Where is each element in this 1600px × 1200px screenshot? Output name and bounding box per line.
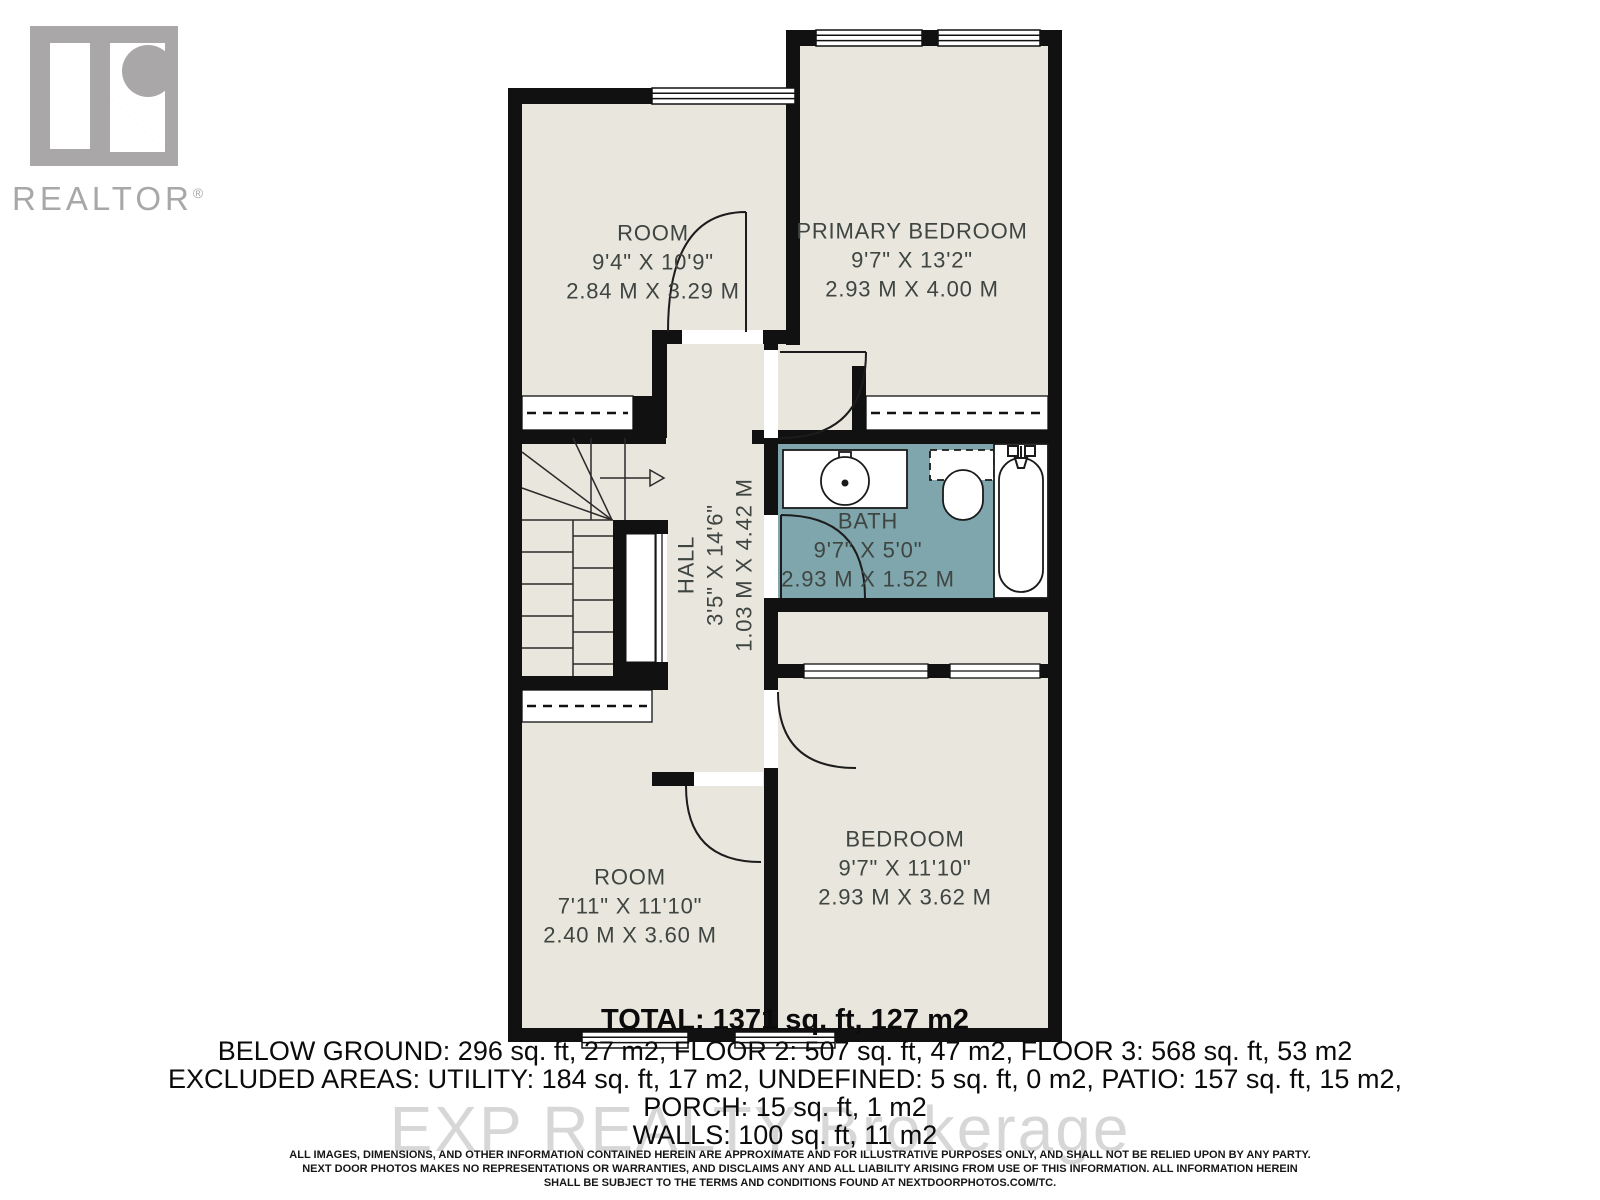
room-label-primary-bedroom: PRIMARY BEDROOM 9'7" X 13'2" 2.93 M X 4.… — [796, 217, 1027, 304]
room-label-bath: BATH 9'7" X 5'0" 2.93 M X 1.52 M — [781, 507, 954, 594]
bathtub — [994, 444, 1048, 598]
room-name: ROOM — [543, 863, 716, 892]
room-name: BEDROOM — [818, 825, 991, 854]
room-name: PRIMARY BEDROOM — [796, 217, 1027, 246]
room-label-hall: HALL 3'5" X 14'6" 1.03 M X 4.42 M — [672, 478, 759, 651]
room-dim-metric: 2.40 M X 3.60 M — [543, 921, 716, 950]
registered-mark: ® — [193, 185, 207, 201]
closet — [522, 396, 633, 430]
floorplan-page: ROOM 9'4" X 10'9" 2.84 M X 3.29 M PRIMAR… — [0, 0, 1600, 1200]
room-label-upper-left: ROOM 9'4" X 10'9" 2.84 M X 3.29 M — [566, 219, 739, 306]
room-dim-imperial: 9'4" X 10'9" — [566, 248, 739, 277]
window — [652, 88, 795, 104]
room-dim-metric: 2.84 M X 3.29 M — [566, 277, 739, 306]
room-label-bedroom: BEDROOM 9'7" X 11'10" 2.93 M X 3.62 M — [818, 825, 991, 912]
disclaimer-line: SHALL BE SUBJECT TO THE TERMS AND CONDIT… — [0, 1176, 1600, 1190]
hall-closet — [626, 534, 655, 662]
room-dim-imperial: 9'7" X 11'10" — [818, 854, 991, 883]
summary-porch: PORCH: 15 sq. ft, 1 m2 — [0, 1092, 1570, 1123]
room-dim-imperial: 3'5" X 14'6" — [701, 478, 730, 651]
summary-walls: WALLS: 100 sq. ft, 11 m2 — [0, 1120, 1570, 1151]
disclaimer-line: ALL IMAGES, DIMENSIONS, AND OTHER INFORM… — [0, 1148, 1600, 1162]
room-dim-metric: 2.93 M X 1.52 M — [781, 565, 954, 594]
vanity-sink — [783, 450, 907, 508]
room-dim-metric: 1.03 M X 4.42 M — [730, 478, 759, 651]
summary-floors: BELOW GROUND: 296 sq. ft, 27 m2, FLOOR 2… — [0, 1036, 1570, 1067]
realtor-logo-icon — [30, 26, 190, 176]
room-dim-imperial: 7'11" X 11'10" — [543, 892, 716, 921]
summary-excluded: EXCLUDED AREAS: UTILITY: 184 sq. ft, 17 … — [0, 1064, 1570, 1095]
room-name: ROOM — [566, 219, 739, 248]
summary-total: TOTAL: 1371 sq. ft, 127 m2 — [0, 1004, 1570, 1037]
room-label-lower-left: ROOM 7'11" X 11'10" 2.40 M X 3.60 M — [543, 863, 716, 950]
closet-sliding-doors — [804, 664, 1040, 678]
room-dim-metric: 2.93 M X 3.62 M — [818, 883, 991, 912]
window — [938, 30, 1040, 46]
room-dim-metric: 2.93 M X 4.00 M — [796, 275, 1027, 304]
room-name: HALL — [672, 478, 701, 651]
room-dim-imperial: 9'7" X 5'0" — [781, 536, 954, 565]
room-dim-imperial: 9'7" X 13'2" — [796, 246, 1027, 275]
realtor-logo-wordmark: REALTOR® — [12, 180, 207, 218]
window — [816, 30, 922, 46]
closet — [866, 396, 1048, 430]
disclaimer-line: NEXT DOOR PHOTOS MAKES NO REPRESENTATION… — [0, 1162, 1600, 1176]
closet — [522, 690, 652, 722]
room-name: BATH — [781, 507, 954, 536]
